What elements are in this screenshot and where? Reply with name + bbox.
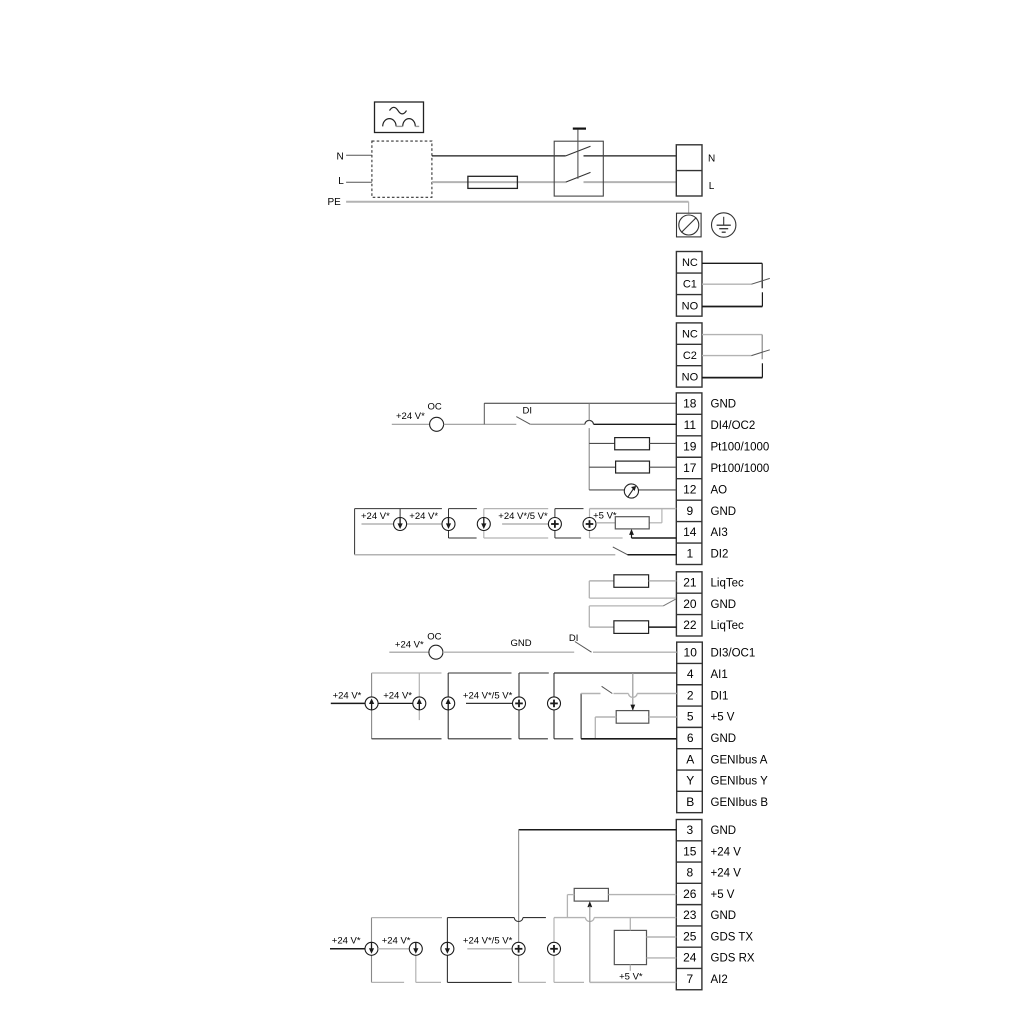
svg-text:+24 V*: +24 V* bbox=[396, 411, 425, 422]
svg-text:A: A bbox=[686, 752, 694, 766]
svg-text:GND: GND bbox=[711, 825, 737, 837]
svg-text:+24 V*: +24 V* bbox=[395, 640, 424, 651]
svg-text:23: 23 bbox=[683, 908, 697, 922]
svg-text:GENIbus B: GENIbus B bbox=[711, 797, 769, 809]
svg-text:LiqTec: LiqTec bbox=[711, 620, 744, 632]
svg-text:+5 V*: +5 V* bbox=[619, 971, 643, 982]
svg-text:20: 20 bbox=[683, 597, 697, 611]
svg-text:2: 2 bbox=[687, 688, 694, 702]
svg-text:+24 V*: +24 V* bbox=[361, 511, 390, 522]
svg-text:+24 V*/5 V*: +24 V*/5 V* bbox=[498, 511, 548, 522]
svg-text:10: 10 bbox=[684, 646, 698, 660]
svg-text:Pt100/1000: Pt100/1000 bbox=[711, 441, 770, 453]
svg-text:DI3/OC1: DI3/OC1 bbox=[711, 648, 756, 660]
svg-text:OC: OC bbox=[428, 402, 442, 413]
svg-text:DI: DI bbox=[523, 406, 533, 417]
svg-text:L: L bbox=[338, 176, 344, 187]
svg-text:18: 18 bbox=[683, 397, 697, 411]
svg-text:NC: NC bbox=[682, 257, 698, 269]
svg-text:OC: OC bbox=[427, 632, 441, 643]
svg-text:5: 5 bbox=[687, 710, 694, 724]
svg-text:6: 6 bbox=[687, 731, 694, 745]
svg-text:8: 8 bbox=[686, 866, 693, 880]
svg-text:17: 17 bbox=[683, 461, 697, 475]
svg-text:DI1: DI1 bbox=[711, 690, 729, 702]
svg-text:+24 V*/5 V*: +24 V*/5 V* bbox=[463, 690, 513, 701]
svg-text:AI1: AI1 bbox=[711, 669, 728, 681]
svg-text:12: 12 bbox=[683, 482, 697, 496]
svg-text:AO: AO bbox=[711, 484, 728, 496]
svg-text:LiqTec: LiqTec bbox=[711, 577, 744, 589]
svg-text:+5 V*: +5 V* bbox=[593, 511, 617, 522]
svg-text:+24 V*: +24 V* bbox=[332, 935, 361, 946]
svg-text:L: L bbox=[709, 181, 715, 192]
svg-text:B: B bbox=[686, 795, 694, 809]
svg-text:AI2: AI2 bbox=[711, 974, 728, 986]
svg-text:GND: GND bbox=[711, 399, 737, 411]
svg-text:7: 7 bbox=[686, 972, 693, 986]
svg-text:+5 V: +5 V bbox=[711, 889, 735, 901]
svg-text:1: 1 bbox=[686, 547, 693, 561]
svg-text:GDS TX: GDS TX bbox=[711, 931, 754, 943]
svg-text:+24 V: +24 V bbox=[711, 868, 742, 880]
svg-text:GDS RX: GDS RX bbox=[711, 953, 755, 965]
svg-text:+24 V*: +24 V* bbox=[333, 690, 362, 701]
svg-text:NO: NO bbox=[682, 300, 699, 312]
svg-text:4: 4 bbox=[687, 667, 694, 681]
svg-text:AI3: AI3 bbox=[711, 527, 728, 539]
svg-text:N: N bbox=[337, 151, 344, 162]
svg-text:26: 26 bbox=[683, 887, 697, 901]
svg-text:+24 V: +24 V bbox=[711, 846, 742, 858]
svg-text:GND: GND bbox=[511, 638, 532, 649]
svg-text:PE: PE bbox=[328, 197, 342, 208]
svg-text:GND: GND bbox=[711, 733, 737, 745]
svg-text:GENIbus Y: GENIbus Y bbox=[711, 776, 769, 788]
svg-text:25: 25 bbox=[683, 929, 697, 943]
svg-text:19: 19 bbox=[683, 439, 697, 453]
svg-text:Y: Y bbox=[686, 774, 694, 788]
svg-text:11: 11 bbox=[684, 418, 697, 432]
svg-text:GND: GND bbox=[711, 910, 737, 922]
svg-text:NO: NO bbox=[682, 371, 699, 383]
svg-text:21: 21 bbox=[683, 575, 697, 589]
svg-text:22: 22 bbox=[683, 618, 697, 632]
svg-text:9: 9 bbox=[686, 504, 693, 518]
svg-text:+24 V*: +24 V* bbox=[383, 690, 412, 701]
svg-text:15: 15 bbox=[683, 844, 697, 858]
svg-text:GND: GND bbox=[711, 599, 737, 611]
svg-text:N: N bbox=[708, 153, 715, 164]
svg-text:Pt100/1000: Pt100/1000 bbox=[711, 463, 770, 475]
svg-text:24: 24 bbox=[683, 951, 697, 965]
svg-text:GENIbus A: GENIbus A bbox=[711, 754, 768, 766]
svg-text:NC: NC bbox=[682, 329, 698, 341]
svg-text:DI4/OC2: DI4/OC2 bbox=[711, 420, 756, 432]
svg-text:GND: GND bbox=[711, 506, 737, 518]
svg-text:+24 V*: +24 V* bbox=[382, 935, 411, 946]
svg-text:+24 V*: +24 V* bbox=[409, 511, 438, 522]
svg-text:14: 14 bbox=[683, 525, 697, 539]
svg-text:3: 3 bbox=[686, 823, 693, 837]
svg-text:C2: C2 bbox=[683, 350, 697, 362]
svg-text:C1: C1 bbox=[683, 279, 697, 291]
svg-text:+5 V: +5 V bbox=[711, 712, 735, 724]
svg-text:+24 V*/5 V*: +24 V*/5 V* bbox=[463, 935, 513, 946]
svg-text:DI2: DI2 bbox=[711, 549, 729, 561]
